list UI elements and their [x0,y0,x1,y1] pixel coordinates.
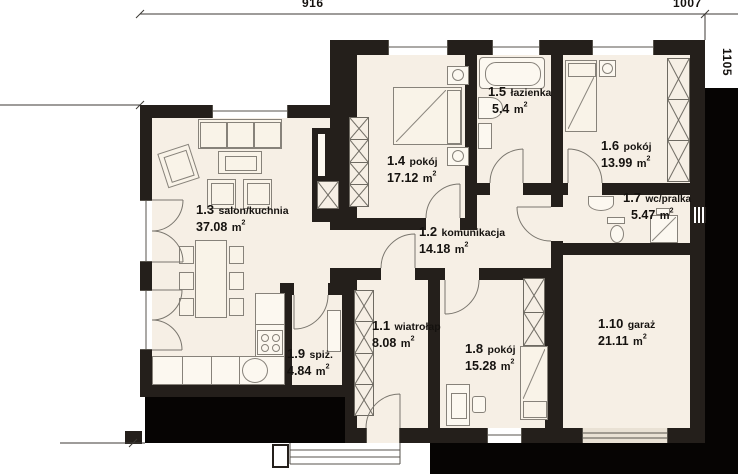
room-label-lazienka: 1.5 łazienka 5.4 m2 [488,84,551,118]
wardrobe-wiatrolap [354,290,374,416]
bed-1-6 [565,60,597,132]
window-salon-top [212,105,288,118]
dining-chair [179,272,194,290]
dining-chair [229,246,244,264]
opening-wc-door [551,207,563,241]
dining-chair [229,298,244,316]
dining-chair [229,272,244,290]
room-label-1-6: 1.6 pokój 13.99 m2 [601,138,652,172]
room-label-1-8: 1.8 pokój 15.28 m2 [465,341,516,375]
dining-chair [179,246,194,264]
window-1-4 [388,40,448,55]
opening-salon-komunikacja [330,230,345,268]
garage-door [582,428,668,443]
porch-column [272,444,289,468]
room-label-wiatrolap: 1.1 wiatrołap 8.08 m2 [372,318,441,352]
shadow-right [705,88,738,474]
room-label-komunikacja: 1.2 komunikacja 14.18 m2 [419,224,505,258]
room-label-salon: 1.3 salon/kuchnia 37.08 m2 [196,202,289,236]
fireplace-icon [317,181,339,209]
desk-1-8 [446,384,470,426]
lamp-icon [452,150,464,162]
opening-lazienka-door [490,183,523,195]
bed-1-4 [393,87,462,145]
room-label-wc-pralka: 1.7 wc/pralka 5.47 m2 [623,190,691,224]
washbasin-1-7 [588,196,614,211]
dimension-right-side: 1105 [720,48,734,76]
dining-chair [179,298,194,316]
bed-1-8 [520,346,548,420]
desk-chair [472,396,486,413]
vent-mark [694,207,706,223]
opening-spiz-door [294,283,328,295]
kitchen-sink [242,358,268,383]
dimension-top-right: 1007 [673,0,702,10]
room-label-garaz: 1.10 garaż 21.11 m2 [598,316,655,350]
shadow-bottom [430,443,738,474]
stove [257,330,283,355]
window-lazienka [492,40,540,55]
opening-wiatrolap-door [381,268,415,280]
bathroom-cabinet [478,123,492,149]
room-label-1-4: 1.4 pokój 17.12 m2 [387,153,438,187]
coffee-table [218,151,262,174]
wardrobe-1-8 [523,278,545,346]
entrance-door-opening [366,428,400,443]
wardrobe-1-6 [667,58,690,182]
toilet-bowl [610,225,624,243]
lamp-icon [602,63,613,74]
opening-1-8-door [445,268,479,280]
floor-plan: 1.3 salon/kuchnia 37.08 m2 1.4 pokój 17.… [0,0,738,474]
shadow-left-wing [145,397,350,443]
opening-1-6-door [568,183,602,195]
terrace-door-1 [140,200,152,262]
dining-table [195,240,227,318]
room-label-spiz: 1.9 spiż. 4.84 m2 [287,346,333,380]
dimension-top-left: 916 [302,0,324,10]
lamp-icon [452,69,464,81]
wardrobe-1-4 [349,117,369,207]
window-1-6 [592,40,654,55]
porch-post [125,431,142,444]
fireplace-slot [318,134,325,176]
window-1-8 [487,428,522,443]
sofa [198,119,282,149]
terrace-door-2 [140,290,152,350]
